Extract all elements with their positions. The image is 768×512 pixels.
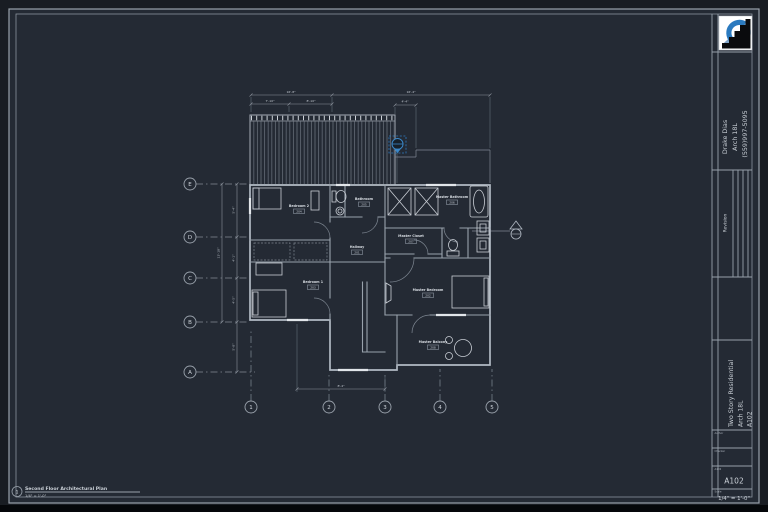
grid-bubble-e[interactable]: E: [184, 178, 196, 190]
dimension-text: 5'-4": [232, 206, 236, 214]
dimension-text: 4'-4": [401, 100, 409, 104]
svg-text:208: 208: [430, 346, 436, 350]
svg-text:Master Balcony: Master Balcony: [419, 340, 448, 344]
svg-text:Bathroom: Bathroom: [355, 197, 374, 201]
bottom-band: [0, 505, 768, 512]
svg-text:Bedroom 2: Bedroom 2: [289, 204, 309, 208]
dimension-text: 16'-8": [286, 90, 296, 94]
grid-bubble-4[interactable]: 4: [434, 401, 446, 413]
svg-text:2: 2: [327, 405, 331, 411]
svg-text:201: 201: [354, 251, 360, 255]
sheet-border: [0, 0, 768, 512]
revision-label: Revision: [723, 213, 729, 232]
drawing-sheet: E D C B A 1 2 3 4 5 16'-8" 16'-4" 7'-10"…: [0, 0, 768, 512]
svg-text:Bedroom 1: Bedroom 1: [303, 280, 324, 284]
checker-field-label: Checker: [715, 449, 726, 453]
scale-field-label: Scale: [715, 490, 722, 494]
svg-text:202: 202: [425, 294, 431, 298]
firm-logo: [719, 16, 752, 50]
grid-bubble-3[interactable]: 3: [379, 401, 391, 413]
grid-bubble-5[interactable]: 5: [486, 401, 498, 413]
svg-text:E: E: [188, 182, 192, 188]
dimension-text: 13'-10": [217, 247, 221, 259]
svg-text:205: 205: [361, 203, 367, 207]
svg-text:Master Bathroom: Master Bathroom: [436, 195, 469, 199]
svg-text:Master Closet: Master Closet: [398, 234, 424, 238]
svg-text:204: 204: [296, 210, 302, 214]
deck-hatch-fill: [251, 122, 394, 185]
svg-text:207: 207: [408, 240, 414, 244]
grid-bubble-2[interactable]: 2: [323, 401, 335, 413]
grid-bubble-1[interactable]: 1: [245, 401, 257, 413]
designer-phone: (559)997-5095: [742, 110, 749, 157]
dimension-text: 5'-0": [232, 343, 236, 351]
project-title: Two Story Residential: [728, 360, 735, 428]
svg-text:206: 206: [449, 201, 455, 205]
view-scale-text: 1/4" = 1'-0": [25, 494, 47, 498]
svg-text:5: 5: [490, 405, 494, 411]
svg-text:D: D: [188, 235, 192, 241]
grid-bubble-b[interactable]: B: [184, 316, 196, 328]
dimension-text: 4'-5": [232, 296, 236, 304]
svg-text:Master Bedroom: Master Bedroom: [413, 288, 444, 292]
project-sheet-ref: A102: [747, 411, 754, 427]
svg-text:4: 4: [438, 405, 442, 411]
author-field-label: Author: [715, 431, 725, 435]
svg-text:203: 203: [310, 286, 316, 290]
sheet-number-field-label: A102: [715, 467, 722, 471]
svg-text:1: 1: [249, 405, 253, 411]
svg-text:Hallway: Hallway: [350, 245, 365, 249]
dimension-text: 7'-10": [265, 99, 275, 103]
sheet-number-value[interactable]: A102: [724, 477, 744, 486]
designer-course: Arch 18L: [732, 123, 739, 151]
svg-text:B: B: [188, 320, 192, 326]
grid-bubble-a[interactable]: A: [184, 366, 196, 378]
svg-text:3: 3: [383, 405, 387, 411]
dimension-text: 8'-10": [306, 99, 316, 103]
dimension-text: 16'-4": [406, 90, 416, 94]
grid-bubble-c[interactable]: C: [184, 272, 196, 284]
svg-text:C: C: [188, 276, 192, 282]
scale-value[interactable]: 1/4" = 1'-0": [718, 496, 750, 502]
svg-text:A: A: [188, 370, 192, 376]
outer-border: [9, 9, 759, 503]
dimension-text: 8'-4": [337, 384, 345, 388]
project-course: Arch 18L: [738, 400, 745, 427]
view-number: 1: [16, 489, 19, 495]
dimension-text: 4'-1": [232, 254, 236, 262]
grid-bubble-d[interactable]: D: [184, 231, 196, 243]
view-title-text: Second Floor Architectural Plan: [25, 486, 107, 492]
designer-name: Drake Dias: [722, 120, 729, 154]
